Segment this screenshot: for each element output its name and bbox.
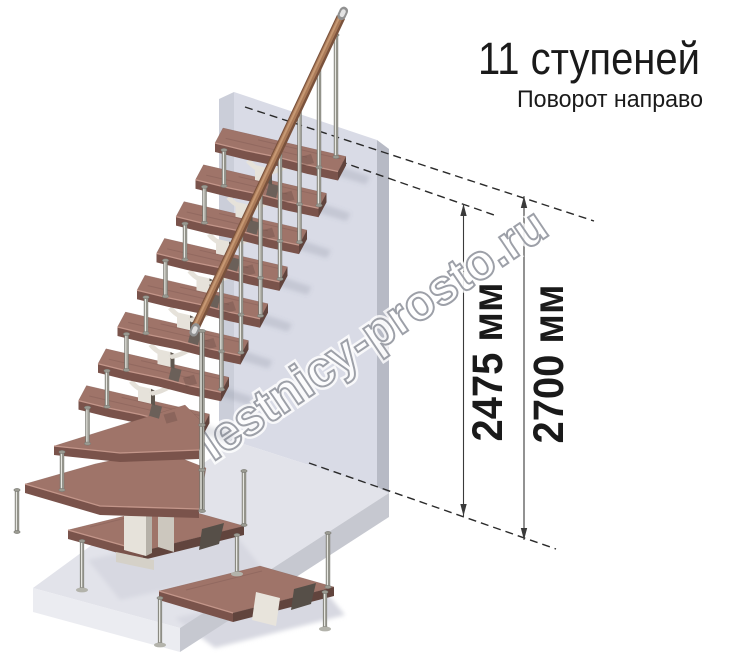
svg-text:2475 мм: 2475 мм: [464, 283, 512, 442]
svg-text:2700 мм: 2700 мм: [525, 285, 573, 444]
svg-text:11 ступеней: 11 ступеней: [478, 33, 700, 84]
svg-text:Поворот направо: Поворот направо: [517, 86, 703, 113]
